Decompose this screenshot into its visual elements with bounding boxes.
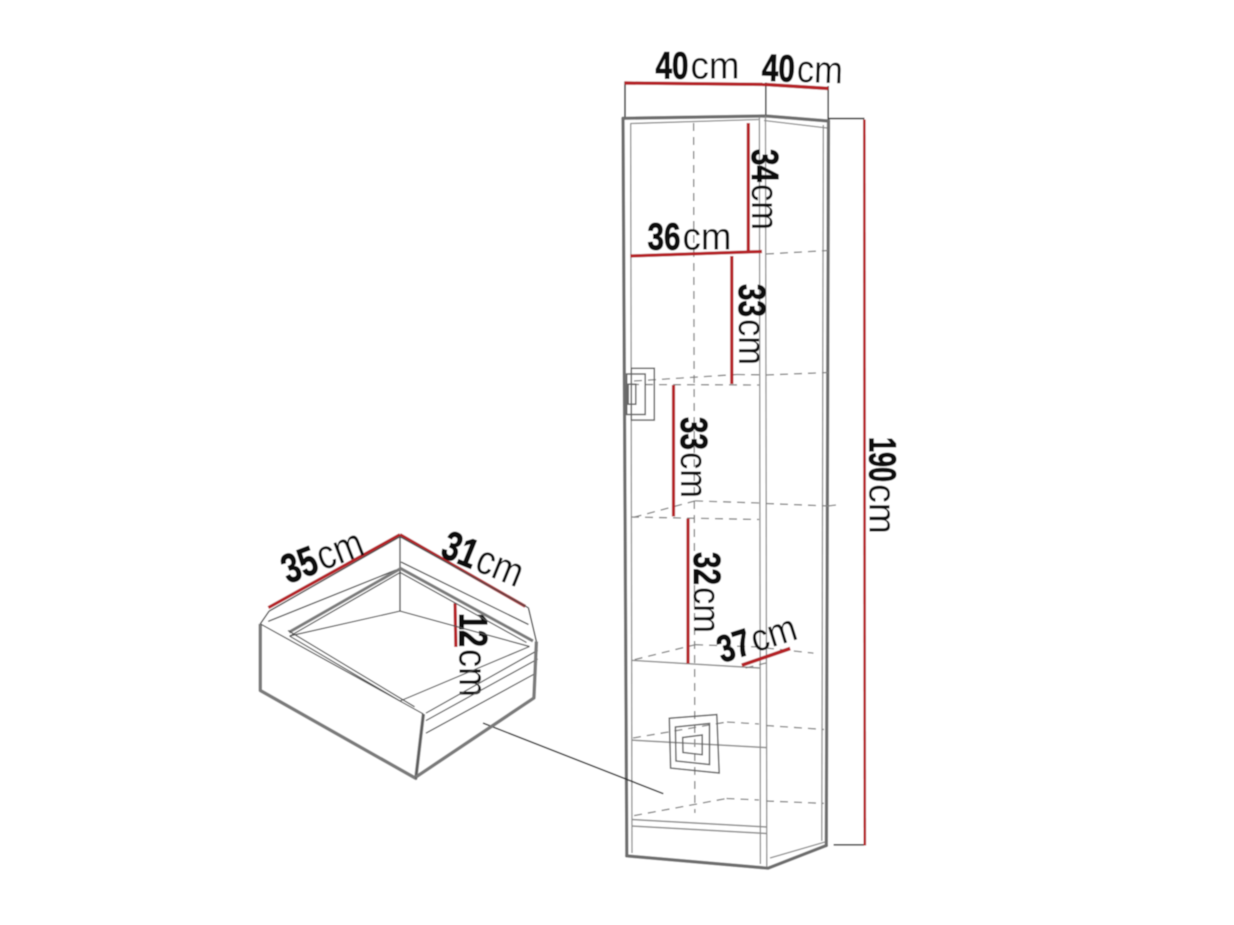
svg-text:cm: cm <box>685 587 727 633</box>
svg-text:190: 190 <box>861 437 903 482</box>
svg-text:cm: cm <box>861 484 903 534</box>
svg-text:32: 32 <box>685 552 727 585</box>
svg-text:33: 33 <box>672 417 714 450</box>
svg-text:cm: cm <box>743 184 785 230</box>
svg-text:12: 12 <box>451 613 495 647</box>
svg-text:40: 40 <box>656 46 689 88</box>
svg-text:cm: cm <box>730 319 772 365</box>
svg-text:36: 36 <box>648 217 681 259</box>
svg-text:cm: cm <box>672 452 714 498</box>
svg-text:cm: cm <box>451 649 495 697</box>
svg-text:34: 34 <box>743 149 785 182</box>
svg-text:33: 33 <box>730 284 772 317</box>
svg-text:cm: cm <box>796 49 843 93</box>
svg-text:cm: cm <box>691 46 740 88</box>
svg-text:40: 40 <box>761 48 795 91</box>
svg-text:cm: cm <box>683 217 732 259</box>
